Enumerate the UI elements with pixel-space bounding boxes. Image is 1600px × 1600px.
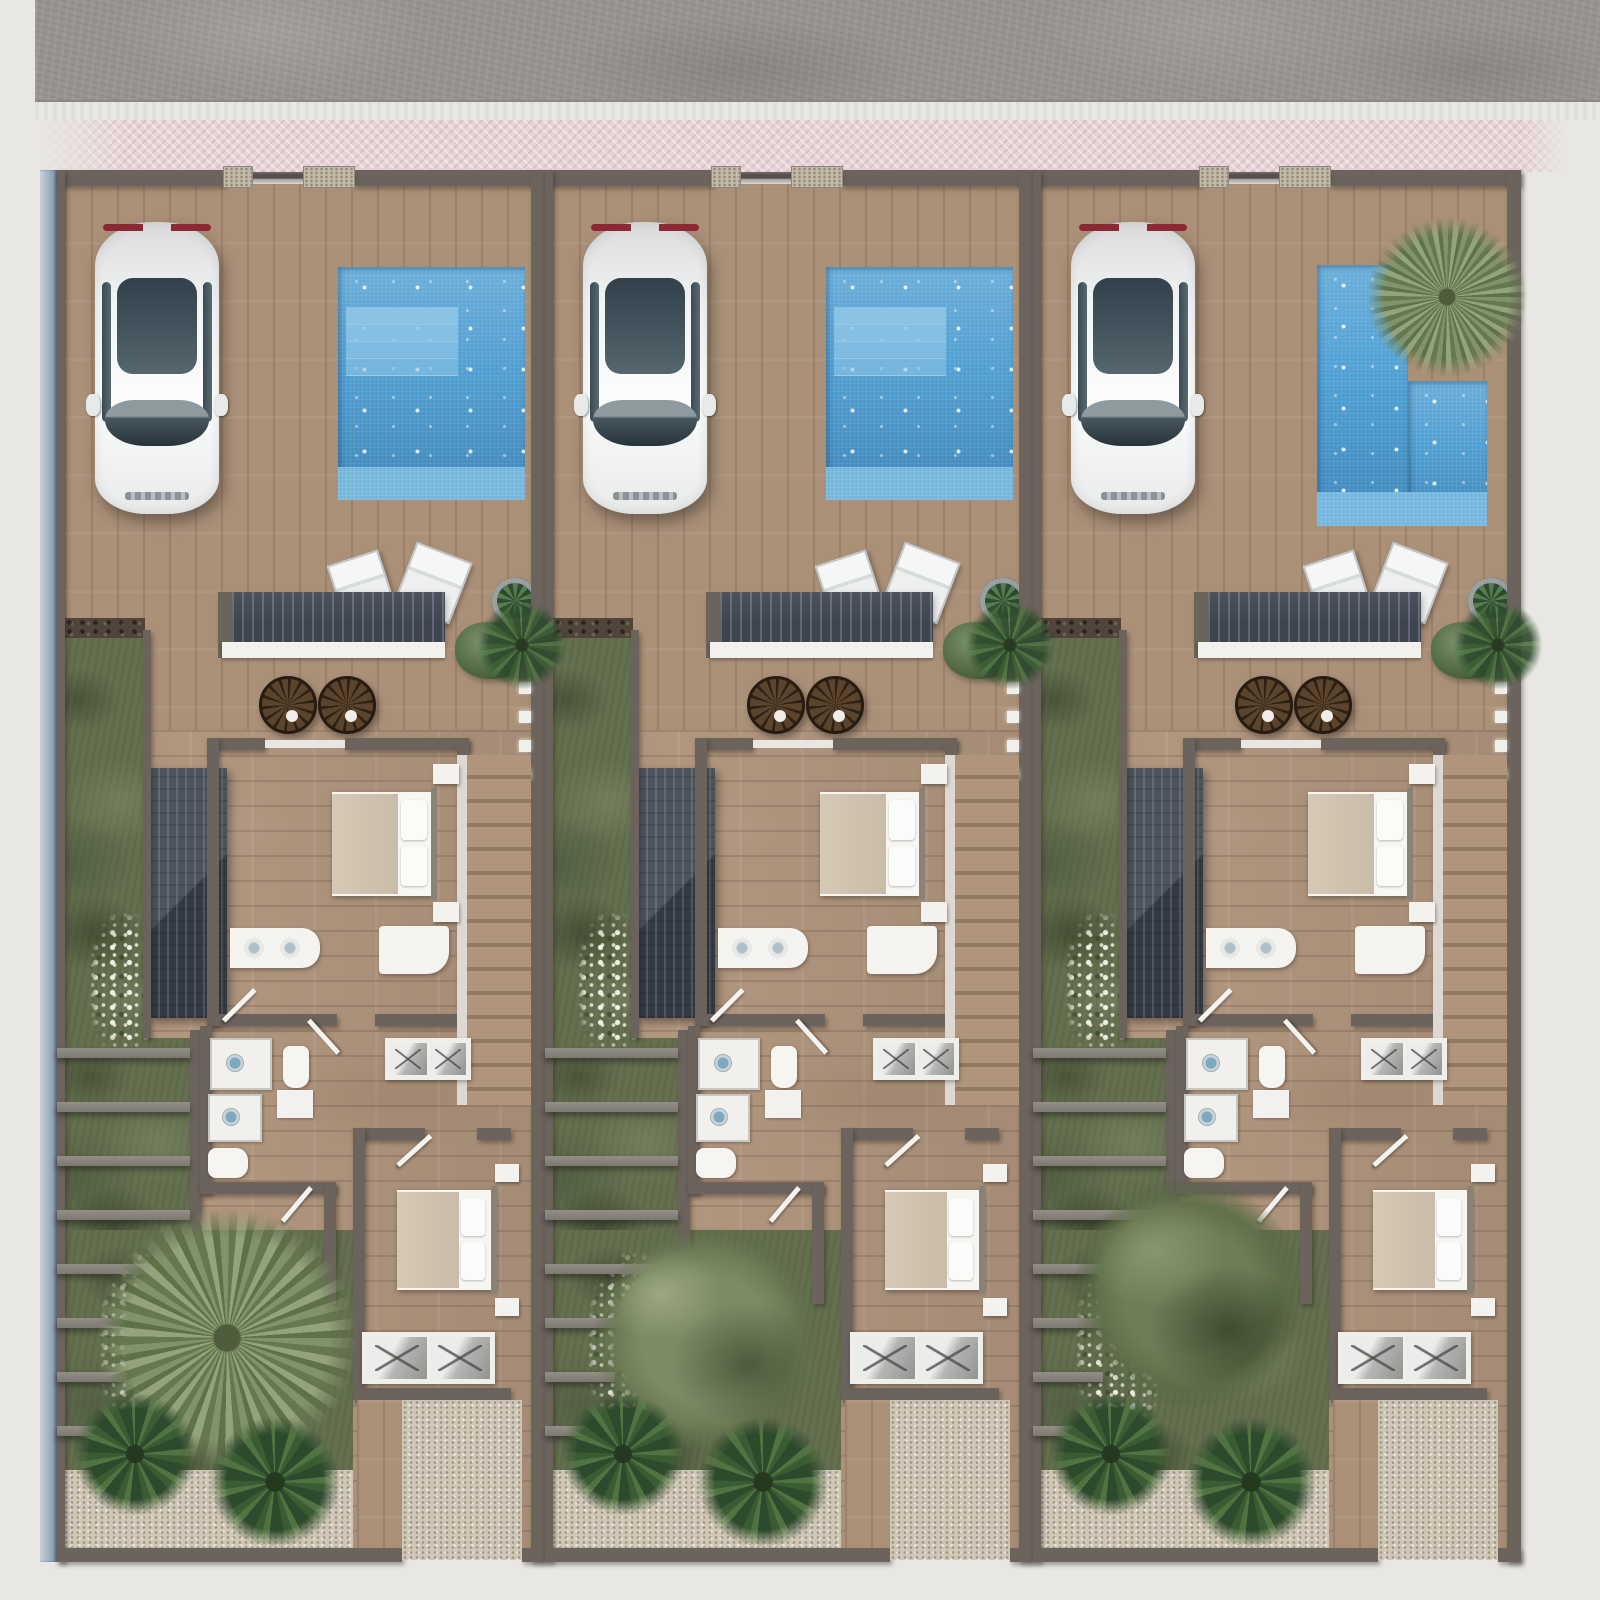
unit-3-guest-pillow-2: [1437, 1242, 1461, 1280]
unit-1-car-roof-glass: [117, 278, 197, 374]
unit-3-master-wall-bottom-r: [1351, 1014, 1445, 1026]
unit-3-bed2-wall-top-r: [1453, 1128, 1487, 1140]
unit-3-gravel-patio: [1378, 1400, 1498, 1560]
unit-3-parked-car: [1071, 222, 1195, 514]
unit-3-vanity-sink-1: [1220, 938, 1240, 958]
unit-2-wardrobe1-door-2: [918, 1043, 955, 1075]
unit-3-car-mirror-right: [1190, 394, 1204, 416]
pink-paved-sidewalk: [0, 120, 1600, 172]
unit-1-terrace-vine: [477, 600, 567, 690]
unit-1-wardrobe1-door-1: [390, 1043, 427, 1075]
unit-3-nightstand-2: [1409, 902, 1435, 922]
unit-1-car-mirror-left: [86, 394, 100, 416]
unit-1-gravel-patio: [402, 1400, 522, 1560]
unit-3-bottom-wall-right: [1498, 1548, 1521, 1562]
unit-2-papasan-cushion-2: [833, 710, 845, 722]
unit-3-mirrored-wardrobe-1: [1361, 1038, 1447, 1080]
unit-3-right-wall: [1507, 170, 1521, 1562]
unit-1-car-side-glass-right: [203, 282, 212, 422]
unit-1-gate-stone-pillar-large: [303, 166, 355, 188]
unit-2-front-wall-right: [841, 170, 1033, 186]
unit-2-shower-2: [696, 1094, 750, 1142]
unit-1-vanity-sink-2: [280, 938, 300, 958]
unit-3-guest-pillow-1: [1437, 1198, 1461, 1236]
unit-3-bottom-wall-left: [1033, 1548, 1378, 1562]
unit-1-wardrobe1-door-2: [430, 1043, 467, 1075]
unit-1-master-door-sill: [265, 740, 345, 748]
unit-2-gate-stone-pillar-large: [791, 166, 843, 188]
unit-1: [57, 170, 545, 1562]
unit-2-bath-wall-bottom: [688, 1182, 824, 1194]
unit-3-papasan-chair-1: [1235, 676, 1293, 734]
unit-2-master-wall-top-r: [833, 738, 957, 750]
unit-2-left-wall: [545, 170, 553, 1562]
unit-1-double-sink-vanity: [230, 928, 320, 968]
unit-1-garden-beam-3: [57, 1156, 190, 1166]
unit-3-wardrobe2-door-2: [1406, 1337, 1466, 1379]
unit-3-garden-beam-3: [1033, 1156, 1166, 1166]
unit-3-pergola-roof: [1198, 592, 1421, 642]
unit-1-master-wall-bottom-r: [375, 1014, 469, 1026]
unit-3-guest-headboard: [1467, 1186, 1473, 1294]
unit-2-car-side-glass-left: [590, 282, 599, 422]
unit-3-master-pillow-1: [1377, 800, 1403, 840]
unit-2-pool-shallow-ledge: [826, 467, 1013, 500]
unit-1-car-taillight-right: [171, 224, 211, 231]
unit-2-pool-step-4: [834, 358, 946, 376]
unit-1-shower-drain-2: [222, 1108, 240, 1126]
unit-1-pool-step-2: [346, 324, 458, 342]
unit-3-mirrored-wardrobe-2: [1338, 1332, 1471, 1384]
unit-1-banana-plant-2: [209, 1416, 341, 1548]
unit-2-guest-pillow-1: [949, 1198, 973, 1236]
unit-1-nightstand-2: [433, 902, 459, 922]
unit-3-dresser: [1355, 926, 1425, 974]
unit-3-terrace-vine: [1453, 600, 1543, 690]
unit-2-toilet-1: [771, 1046, 797, 1088]
unit-2-vanity-sink-1: [732, 938, 752, 958]
unit-1-wardrobe2-door-1: [367, 1337, 427, 1379]
unit-1-left-wall: [57, 170, 65, 1562]
unit-2-car-mirror-left: [574, 394, 588, 416]
unit-1-soil-planting-strip: [63, 618, 145, 640]
unit-2-mirrored-wardrobe-1: [873, 1038, 959, 1080]
unit-2-pergola-roof: [710, 592, 933, 642]
unit-2-car-windshield: [593, 400, 697, 446]
unit-1-master-pillow-2: [401, 846, 427, 886]
unit-2-wardrobe1-door-1: [878, 1043, 915, 1075]
unit-1-toilet-2: [208, 1148, 248, 1178]
unit-1-papasan-chair-2: [318, 676, 376, 734]
unit-2-master-wall-left: [695, 738, 707, 1026]
unit-3-car-mirror-left: [1062, 394, 1076, 416]
unit-3: [1033, 170, 1521, 1562]
unit-2-guest-headboard: [979, 1186, 985, 1294]
unit-3-guest-nightstand-1: [1471, 1164, 1495, 1182]
unit-1-guest-pillow-2: [461, 1242, 485, 1280]
unit-2-guest-pillow-2: [949, 1242, 973, 1280]
unit-1-car-side-glass-left: [102, 282, 111, 422]
unit-3-garden-beam-1: [1033, 1048, 1166, 1058]
unit-1-pool-shallow-ledge: [338, 467, 525, 500]
unit-1-papasan-cushion-1: [286, 710, 298, 722]
unit-3-car-side-glass-left: [1078, 282, 1087, 422]
unit-1-dresser: [379, 926, 449, 974]
unit-2-master-bed-blanket: [820, 794, 886, 894]
unit-2-shower-drain-1: [714, 1054, 732, 1072]
unit-2-bed2-wall-top-r: [965, 1128, 999, 1140]
unit-1-wall-light-3: [519, 740, 531, 752]
unit-1-car-windshield: [105, 400, 209, 446]
unit-3-vanity-sink-2: [1256, 938, 1276, 958]
unit-2-guest-nightstand-1: [983, 1164, 1007, 1182]
unit-2-pool-step-1: [834, 307, 946, 325]
unit-2-front-wall-left: [545, 170, 713, 186]
unit-1-gate-stone-pillar-small: [223, 166, 253, 188]
unit-2-car-roof-glass: [605, 278, 685, 374]
unit-3-shower-2: [1184, 1094, 1238, 1142]
unit-3-guest-bed-blanket: [1373, 1192, 1435, 1288]
unit-2-car-rear-glass: [601, 234, 689, 274]
unit-2-wardrobe2-door-1: [855, 1337, 915, 1379]
unit-1-shower-1: [210, 1038, 272, 1090]
unit-1-interior-staircase: [467, 755, 531, 1105]
unit-3-front-wall-right: [1329, 170, 1521, 186]
unit-3-banana-plant-1: [1049, 1392, 1173, 1516]
unit-1-master-wall-left: [207, 738, 219, 1026]
unit-3-wall-light-3: [1495, 740, 1507, 752]
unit-1-guest-headboard: [491, 1186, 497, 1294]
unit-1-pool-step-1: [346, 307, 458, 325]
unit-2-parked-car: [583, 222, 707, 514]
unit-1-terrace-white-bench: [222, 642, 445, 658]
unit-3-wood-path: [1333, 1400, 1378, 1548]
unit-1-mirrored-wardrobe-1: [385, 1038, 471, 1080]
asphalt-street: [35, 0, 1600, 100]
unit-3-interior-staircase: [1443, 755, 1507, 1105]
unit-3-shower-drain-1: [1202, 1054, 1220, 1072]
unit-1-gate-rail: [253, 174, 303, 178]
unit-1-bed2-wall-top-r: [477, 1128, 511, 1140]
unit-1-washbasin: [277, 1090, 313, 1118]
unit-3-front-wall-left: [1033, 170, 1201, 186]
unit-3-car-windshield: [1081, 400, 1185, 446]
unit-1-front-wall-right: [353, 170, 545, 186]
unit-1-pool-step-3: [346, 341, 458, 359]
unit-2-wardrobe2-door-2: [918, 1337, 978, 1379]
unit-1-pergola-roof: [222, 592, 445, 642]
sidewalk-fade-left: [0, 120, 130, 172]
unit-1-pool-step-4: [346, 358, 458, 376]
unit-3-guest-nightstand-2: [1471, 1298, 1495, 1316]
unit-1-mirrored-wardrobe-2: [362, 1332, 495, 1384]
unit-3-car-taillight-right: [1147, 224, 1187, 231]
unit-2-bed2-wall-bottom: [841, 1388, 999, 1400]
unit-2-swimming-pool: [826, 267, 1013, 500]
unit-2-dresser: [867, 926, 937, 974]
unit-3-toilet-2: [1184, 1148, 1224, 1178]
unit-2-master-wall-bottom-r: [863, 1014, 957, 1026]
unit-1-car-taillight-left: [103, 224, 143, 231]
unit-3-master-pillow-2: [1377, 846, 1403, 886]
unit-1-bed2-wall-bottom: [353, 1388, 511, 1400]
unit-3-wardrobe1-door-2: [1406, 1043, 1443, 1075]
unit-1-garden-beam-1: [57, 1048, 190, 1058]
unit-1-wood-path: [357, 1400, 402, 1548]
unit-2-papasan-chair-1: [747, 676, 805, 734]
unit-1-papasan-cushion-2: [345, 710, 357, 722]
unit-3-garden-beam-7: [1033, 1372, 1103, 1382]
unit-3-car-taillight-left: [1079, 224, 1119, 231]
unit-2-terrace-white-bench: [710, 642, 933, 658]
unit-2-banana-plant-2: [697, 1416, 829, 1548]
unit-3-car-front-grille: [1101, 492, 1165, 500]
unit-3-master-wall-top-r: [1321, 738, 1445, 750]
unit-1-banana-plant-1: [73, 1392, 197, 1516]
unit-3-banana-plant-2: [1185, 1416, 1317, 1548]
unit-3-car-side-glass-right: [1179, 282, 1188, 422]
unit-2-nightstand-1: [921, 764, 947, 784]
unit-3-garden-edge-wall: [1119, 630, 1127, 1038]
unit-2-shower-1: [698, 1038, 760, 1090]
unit-1-vanity-sink-1: [244, 938, 264, 958]
unit-2-bottom-wall-right: [1010, 1548, 1033, 1562]
unit-2-wood-path: [845, 1400, 890, 1548]
unit-2-gate-stone-pillar-small: [711, 166, 741, 188]
unit-2-master-pillow-2: [889, 846, 915, 886]
site-plan-canvas: [0, 0, 1600, 1600]
unit-2-shower-drain-2: [710, 1108, 728, 1126]
sidewalk-fade-right: [1520, 120, 1600, 172]
unit-2-interior-staircase: [955, 755, 1019, 1105]
unit-3-shower-drain-2: [1198, 1108, 1216, 1126]
unit-3-car-rear-glass: [1089, 234, 1177, 274]
blue-gray-boundary-wall: [40, 170, 57, 1562]
unit-1-car-mirror-right: [214, 394, 228, 416]
unit-1-swimming-pool: [338, 267, 525, 500]
unit-3-pool-shallow-ledge: [1317, 492, 1487, 526]
unit-2-right-wall: [1019, 170, 1033, 1562]
unit-1-guest-pillow-1: [461, 1198, 485, 1236]
unit-1-car-front-grille: [125, 492, 189, 500]
unit-2: [545, 170, 1033, 1562]
unit-3-car-roof-glass: [1093, 278, 1173, 374]
unit-3-double-sink-vanity: [1206, 928, 1296, 968]
unit-1-wall-light-2: [519, 711, 531, 723]
unit-3-wall-light-2: [1495, 711, 1507, 723]
unit-2-garden-beam-4: [545, 1210, 678, 1220]
unit-3-left-wall: [1033, 170, 1041, 1562]
unit-1-master-pillow-1: [401, 800, 427, 840]
unit-3-papasan-chair-2: [1294, 676, 1352, 734]
unit-1-toilet-1: [283, 1046, 309, 1088]
unit-1-master-bed-blanket: [332, 794, 398, 894]
unit-3-papasan-cushion-2: [1321, 710, 1333, 722]
unit-1-guest-bed-blanket: [397, 1192, 459, 1288]
unit-1-front-wall-left: [57, 170, 225, 186]
unit-3-master-door-sill: [1241, 740, 1321, 748]
unit-1-guest-nightstand-1: [495, 1164, 519, 1182]
unit-3-nightstand-1: [1409, 764, 1435, 784]
unit-1-garden-beam-4: [57, 1210, 190, 1220]
unit-1-bottom-wall-left: [57, 1548, 402, 1562]
unit-2-master-door-sill: [753, 740, 833, 748]
unit-2-nightstand-2: [921, 902, 947, 922]
unit-3-toilet-1: [1259, 1046, 1285, 1088]
unit-1-master-wall-top-r: [345, 738, 469, 750]
unit-3-bed2-wall-bottom: [1329, 1388, 1487, 1400]
unit-2-gate-rail: [741, 174, 791, 178]
unit-2-wall-light-3: [1007, 740, 1019, 752]
unit-2-toilet-2: [696, 1148, 736, 1178]
unit-2-gravel-patio: [890, 1400, 1010, 1560]
unit-1-garden-beam-2: [57, 1102, 190, 1112]
unit-2-guest-nightstand-2: [983, 1298, 1007, 1316]
unit-3-shower-1: [1186, 1038, 1248, 1090]
unit-2-wall-light-2: [1007, 711, 1019, 723]
unit-2-hall-wall: [812, 1182, 824, 1304]
unit-2-mirrored-wardrobe-2: [850, 1332, 983, 1384]
unit-1-nightstand-1: [433, 764, 459, 784]
unit-1-shower-2: [208, 1094, 262, 1142]
unit-2-papasan-chair-2: [806, 676, 864, 734]
unit-3-master-headboard: [1407, 788, 1413, 900]
unit-1-bottom-wall-right: [522, 1548, 545, 1562]
unit-2-garden-edge-wall: [631, 630, 639, 1038]
unit-1-car-rear-glass: [113, 234, 201, 274]
road-fade-left: [0, 0, 38, 120]
unit-2-papasan-cushion-1: [774, 710, 786, 722]
unit-2-master-pillow-1: [889, 800, 915, 840]
unit-2-terrace-vine: [965, 600, 1055, 690]
unit-3-terrace-white-bench: [1198, 642, 1421, 658]
unit-3-garden-tree-bush: [1073, 1178, 1303, 1408]
unit-3-wardrobe1-door-1: [1366, 1043, 1403, 1075]
unit-2-bottom-wall-left: [545, 1548, 890, 1562]
unit-3-master-bed-blanket: [1308, 794, 1374, 894]
unit-2-double-sink-vanity: [718, 928, 808, 968]
unit-2-banana-plant-1: [561, 1392, 685, 1516]
unit-2-washbasin: [765, 1090, 801, 1118]
unit-2-garden-beam-2: [545, 1102, 678, 1112]
unit-1-shower-drain-1: [226, 1054, 244, 1072]
unit-3-papasan-cushion-1: [1262, 710, 1274, 722]
unit-3-pool-palm-tree: [1367, 217, 1527, 377]
unit-1-papasan-chair-1: [259, 676, 317, 734]
unit-1-parked-car: [95, 222, 219, 514]
unit-2-car-taillight-left: [591, 224, 631, 231]
unit-3-gate-rail: [1229, 174, 1279, 178]
unit-3-gate-stone-pillar-small: [1199, 166, 1229, 188]
unit-2-vanity-sink-2: [768, 938, 788, 958]
unit-2-pool-step-2: [834, 324, 946, 342]
unit-2-car-mirror-right: [702, 394, 716, 416]
unit-2-garden-beam-3: [545, 1156, 678, 1166]
unit-2-pool-step-3: [834, 341, 946, 359]
unit-3-garden-beam-2: [1033, 1102, 1166, 1112]
unit-1-master-headboard: [431, 788, 437, 900]
unit-1-guest-nightstand-2: [495, 1298, 519, 1316]
unit-2-guest-bed-blanket: [885, 1192, 947, 1288]
unit-1-bath-wall-bottom: [200, 1182, 336, 1194]
unit-1-wardrobe2-door-2: [430, 1337, 490, 1379]
unit-3-washbasin: [1253, 1090, 1289, 1118]
unit-3-master-wall-left: [1183, 738, 1195, 1026]
unit-2-garden-beam-1: [545, 1048, 678, 1058]
unit-3-gate-stone-pillar-large: [1279, 166, 1331, 188]
unit-2-car-front-grille: [613, 492, 677, 500]
unit-2-master-headboard: [919, 788, 925, 900]
unit-1-right-wall: [531, 170, 545, 1562]
unit-1-garden-edge-wall: [143, 630, 151, 1038]
unit-2-car-side-glass-right: [691, 282, 700, 422]
unit-3-wardrobe2-door-1: [1343, 1337, 1403, 1379]
unit-2-car-taillight-right: [659, 224, 699, 231]
